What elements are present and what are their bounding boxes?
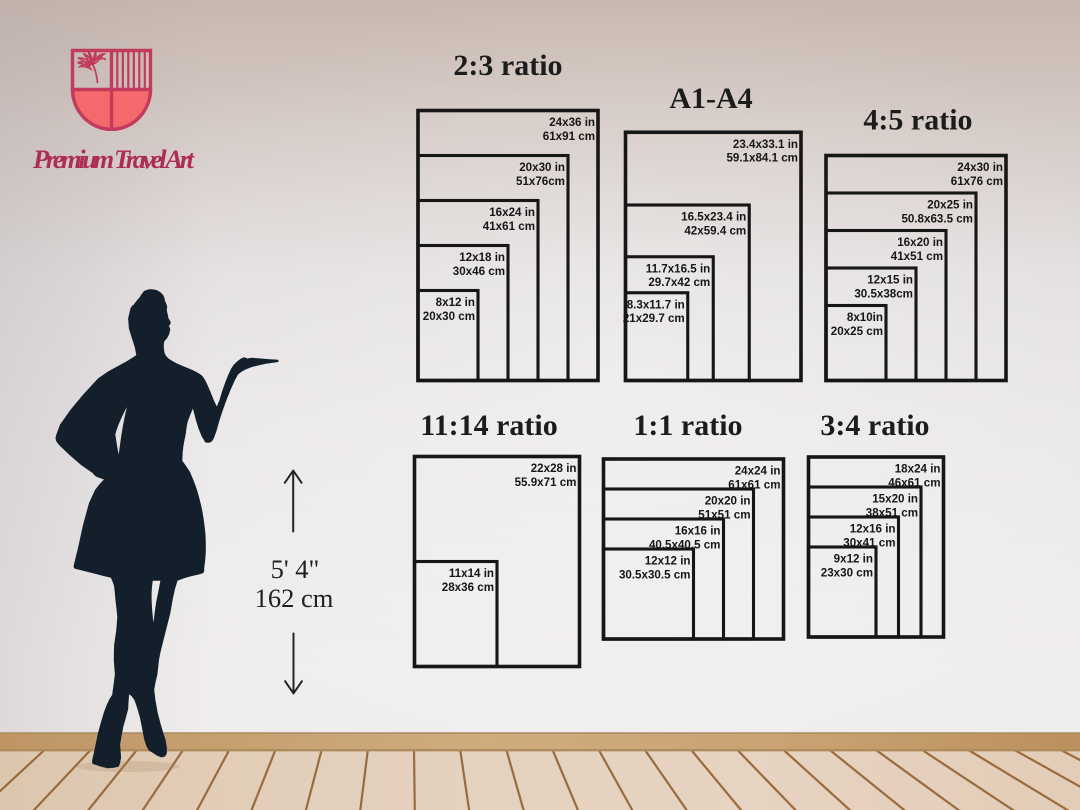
svg-text:61x91 cm: 61x91 cm [543,130,595,143]
svg-text:16x16 in: 16x16 in [675,525,721,538]
svg-text:30.5x38cm: 30.5x38cm [854,287,913,300]
svg-text:20x30 cm: 20x30 cm [423,310,475,323]
svg-text:A1-A4: A1-A4 [669,82,752,115]
svg-text:11:14 ratio: 11:14 ratio [420,409,557,442]
svg-text:21x29.7 cm: 21x29.7 cm [623,312,685,325]
svg-text:2:3 ratio: 2:3 ratio [453,49,562,82]
svg-text:5' 4": 5' 4" [271,554,320,584]
svg-text:24x24 in: 24x24 in [735,465,781,478]
svg-text:9x12 in: 9x12 in [834,553,873,566]
svg-text:55.9x71 cm: 55.9x71 cm [515,476,577,489]
svg-text:8.3x11.7 in: 8.3x11.7 in [627,298,685,311]
svg-text:23.4x33.1 in: 23.4x33.1 in [733,138,798,151]
svg-text:4:5 ratio: 4:5 ratio [863,104,972,137]
svg-text:12x15 in: 12x15 in [867,274,913,287]
svg-text:16x20 in: 16x20 in [897,236,943,249]
svg-text:12x18 in: 12x18 in [459,251,505,264]
svg-text:16x24 in: 16x24 in [489,206,535,219]
svg-text:11x14 in: 11x14 in [449,567,494,580]
svg-text:30x46 cm: 30x46 cm [453,265,505,278]
svg-text:Premium Travel Art: Premium Travel Art [32,144,196,174]
svg-text:51x76cm: 51x76cm [516,175,565,188]
svg-text:24x30 in: 24x30 in [957,161,1003,174]
svg-text:1:1 ratio: 1:1 ratio [633,409,742,442]
svg-text:61x76 cm: 61x76 cm [951,175,1003,188]
svg-text:162 cm: 162 cm [255,583,334,613]
svg-text:22x28 in: 22x28 in [531,462,577,475]
svg-text:41x61 cm: 41x61 cm [483,220,535,233]
svg-text:42x59.4 cm: 42x59.4 cm [684,224,746,237]
svg-text:24x36 in: 24x36 in [549,116,595,129]
svg-text:23x30 cm: 23x30 cm [821,566,873,579]
svg-text:20x25 in: 20x25 in [927,199,973,212]
svg-text:29.7x42 cm: 29.7x42 cm [648,276,710,289]
svg-text:15x20 in: 15x20 in [872,493,918,506]
svg-text:3:4 ratio: 3:4 ratio [820,409,929,442]
svg-text:11.7x16.5 in: 11.7x16.5 in [646,262,710,275]
svg-text:41x51 cm: 41x51 cm [891,250,943,263]
svg-text:12x16 in: 12x16 in [850,523,896,536]
svg-text:28x36 cm: 28x36 cm [442,581,494,594]
svg-text:20x30 in: 20x30 in [519,161,565,174]
svg-text:18x24 in: 18x24 in [895,463,941,476]
svg-text:8x10in: 8x10in [847,311,883,324]
svg-text:12x12 in: 12x12 in [645,555,691,568]
svg-text:20x20 in: 20x20 in [705,495,751,508]
svg-text:16.5x23.4 in: 16.5x23.4 in [681,211,746,224]
svg-text:50.8x63.5 cm: 50.8x63.5 cm [901,212,973,225]
svg-text:30.5x30.5 cm: 30.5x30.5 cm [619,568,691,581]
svg-text:20x25 cm: 20x25 cm [831,325,883,338]
svg-text:8x12 in: 8x12 in [436,296,475,309]
svg-text:59.1x84.1 cm: 59.1x84.1 cm [726,152,798,165]
